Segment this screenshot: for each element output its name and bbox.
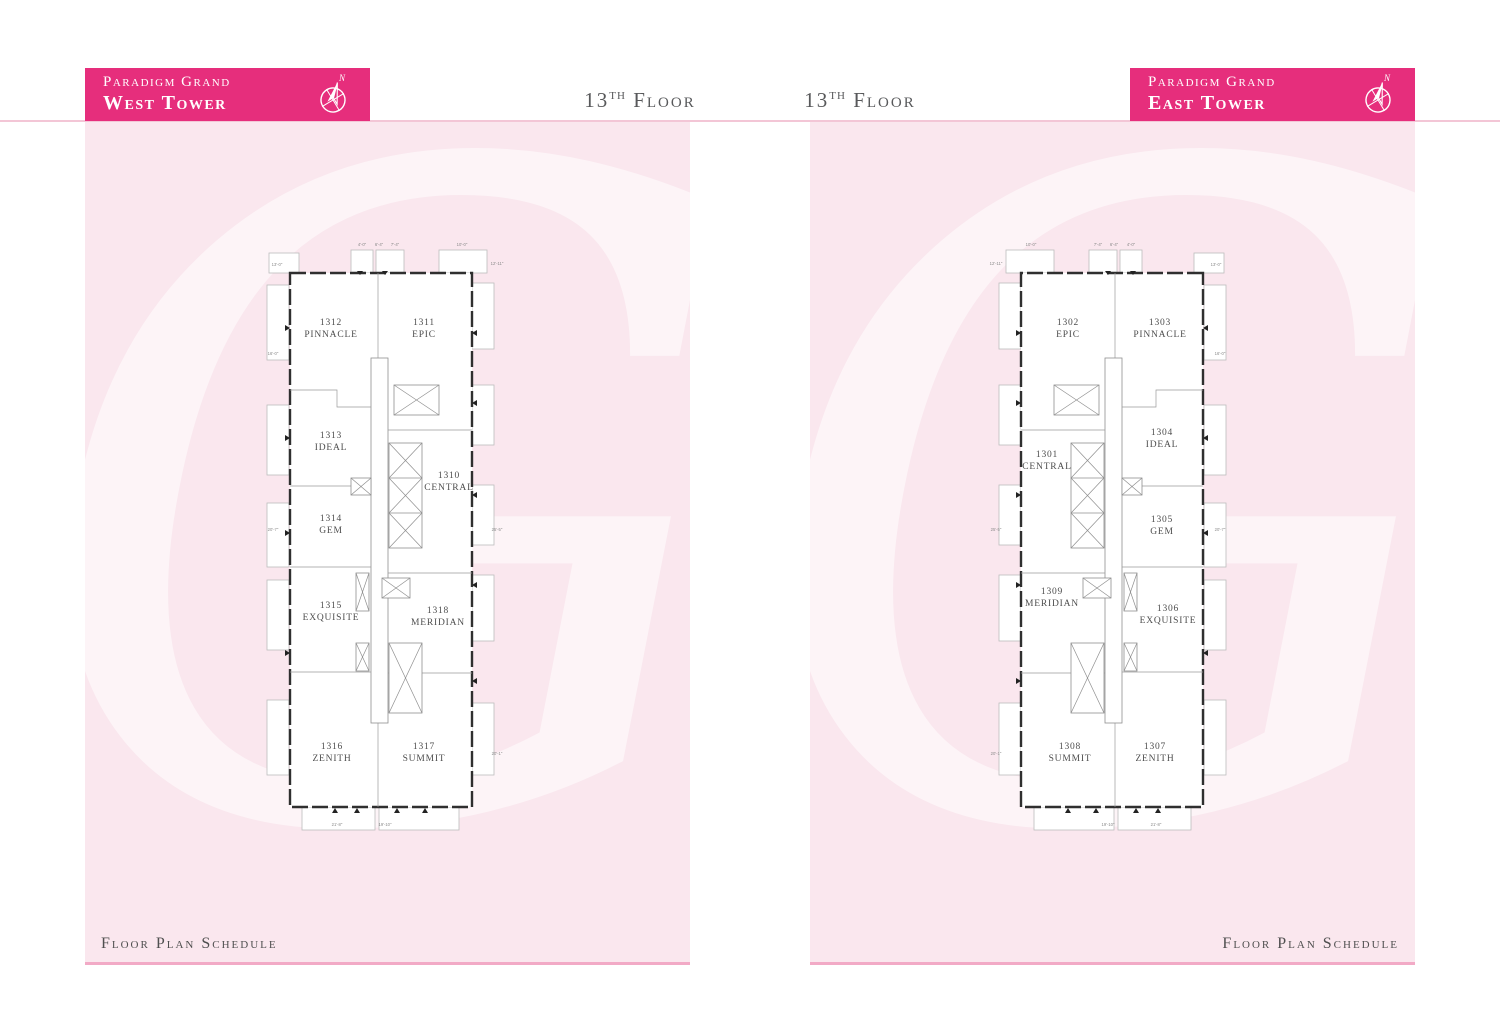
unit-number: 1310	[438, 471, 460, 481]
unit-name: MERIDIAN	[1025, 599, 1079, 609]
west-floor-word: Floor	[633, 88, 696, 112]
dim-label: 20'-7"	[268, 527, 279, 532]
east-floor-plan: 1302 EPIC 1303 PINNACLE 1301 CENTRAL 130…	[980, 235, 1236, 835]
unit-number: 1309	[1041, 587, 1063, 597]
unit-name: EXQUISITE	[303, 613, 360, 623]
east-tower-label: East Tower	[1148, 92, 1357, 115]
unit-number: 1315	[320, 601, 342, 611]
dim-label: 13'-0"	[272, 262, 283, 267]
dim-label: 21'-8"	[1151, 822, 1162, 827]
dim-label: 12'-11"	[491, 261, 504, 266]
unit-number: 1312	[320, 318, 342, 328]
dim-label: 19'-10"	[1102, 822, 1116, 827]
unit-name: IDEAL	[1146, 440, 1179, 450]
compass-north-letter: N	[1383, 73, 1391, 83]
unit-name: PINNACLE	[304, 330, 357, 340]
dim-label: 4'-0"	[1127, 242, 1136, 247]
dim-label: 25'-5"	[991, 527, 1002, 532]
west-floor-number: 13	[584, 88, 609, 112]
west-plan-geometry	[267, 250, 494, 830]
dim-label: 16'-0"	[1215, 351, 1226, 356]
dim-label: 10'-0"	[1026, 242, 1037, 247]
east-floor-title: 13TH Floor	[750, 88, 970, 113]
west-tower-header: Paradigm Grand West Tower N	[85, 68, 370, 121]
unit-name: EXQUISITE	[1140, 616, 1197, 626]
compass-rose	[318, 79, 349, 114]
east-brand-label: Paradigm Grand	[1148, 74, 1357, 91]
unit-number: 1303	[1149, 318, 1171, 328]
east-floor-ordinal: TH	[829, 90, 846, 102]
compass-icon: N	[1357, 70, 1401, 120]
west-header-titles: Paradigm Grand West Tower	[103, 74, 312, 114]
unit-number: 1313	[320, 431, 342, 441]
dim-label: 13'-0"	[1211, 262, 1222, 267]
unit-name: GEM	[1150, 527, 1174, 537]
west-tower-label: West Tower	[103, 92, 312, 115]
compass-rose	[1363, 79, 1394, 114]
dim-label: 6'-4"	[375, 242, 384, 247]
unit-name: CENTRAL	[424, 483, 473, 493]
dim-label: 21'-8"	[332, 822, 343, 827]
east-floor-number: 13	[804, 88, 829, 112]
dim-label: 25'-5"	[492, 527, 503, 532]
unit-name: IDEAL	[315, 443, 348, 453]
unit-number: 1314	[320, 514, 342, 524]
unit-name: ZENITH	[1135, 754, 1174, 764]
compass-icon: N	[312, 70, 356, 120]
west-floor-title: 13TH Floor	[530, 88, 750, 113]
unit-number: 1311	[413, 318, 435, 328]
west-floor-ordinal: TH	[609, 90, 626, 102]
brochure-page: Paradigm Grand West Tower N Paradigm Gra…	[0, 0, 1500, 1034]
unit-name: SUMMIT	[1049, 754, 1092, 764]
unit-name: EPIC	[1056, 330, 1080, 340]
east-panel: G 1302 EPIC 1303 PINNACLE 1301 CENTRAL 1…	[810, 122, 1415, 965]
west-floor-plan: 1312 PINNACLE 1311 EPIC 1313 IDEAL 1310 …	[257, 235, 513, 835]
unit-name: CENTRAL	[1022, 462, 1071, 472]
dim-label: 20'-1"	[991, 751, 1002, 756]
dim-label: 16'-0"	[268, 351, 279, 356]
unit-number: 1306	[1157, 604, 1179, 614]
unit-name: GEM	[319, 526, 343, 536]
unit-number: 1307	[1144, 742, 1166, 752]
unit-number: 1317	[413, 742, 435, 752]
unit-name: MERIDIAN	[411, 618, 465, 628]
unit-number: 1302	[1057, 318, 1079, 328]
unit-number: 1318	[427, 606, 449, 616]
dim-label: 10'-0"	[457, 242, 468, 247]
dim-label: 7'-4"	[1094, 242, 1103, 247]
unit-number: 1304	[1151, 428, 1173, 438]
unit-number: 1301	[1036, 450, 1058, 460]
west-brand-label: Paradigm Grand	[103, 74, 312, 91]
dim-label: 6'-4"	[1110, 242, 1119, 247]
unit-number: 1308	[1059, 742, 1081, 752]
east-tower-header: Paradigm Grand East Tower N	[1130, 68, 1415, 121]
east-plan-geometry	[999, 250, 1226, 830]
dim-label: 20'-1"	[492, 751, 503, 756]
unit-number: 1305	[1151, 515, 1173, 525]
unit-name: ZENITH	[312, 754, 351, 764]
dim-label: 4'-0"	[358, 242, 367, 247]
unit-name: PINNACLE	[1133, 330, 1186, 340]
east-floor-word: Floor	[853, 88, 916, 112]
unit-number: 1316	[321, 742, 343, 752]
west-panel: G	[85, 122, 690, 965]
east-footer-label: Floor Plan Schedule	[1222, 935, 1399, 953]
west-footer-label: Floor Plan Schedule	[101, 935, 278, 953]
unit-name: SUMMIT	[403, 754, 446, 764]
unit-name: EPIC	[412, 330, 436, 340]
dim-label: 20'-7"	[1215, 527, 1226, 532]
dim-label: 7'-4"	[391, 242, 400, 247]
east-header-titles: Paradigm Grand East Tower	[1148, 74, 1357, 114]
compass-north-letter: N	[338, 73, 346, 83]
dim-label: 12'-11"	[990, 261, 1003, 266]
dim-label: 19'-10"	[379, 822, 393, 827]
